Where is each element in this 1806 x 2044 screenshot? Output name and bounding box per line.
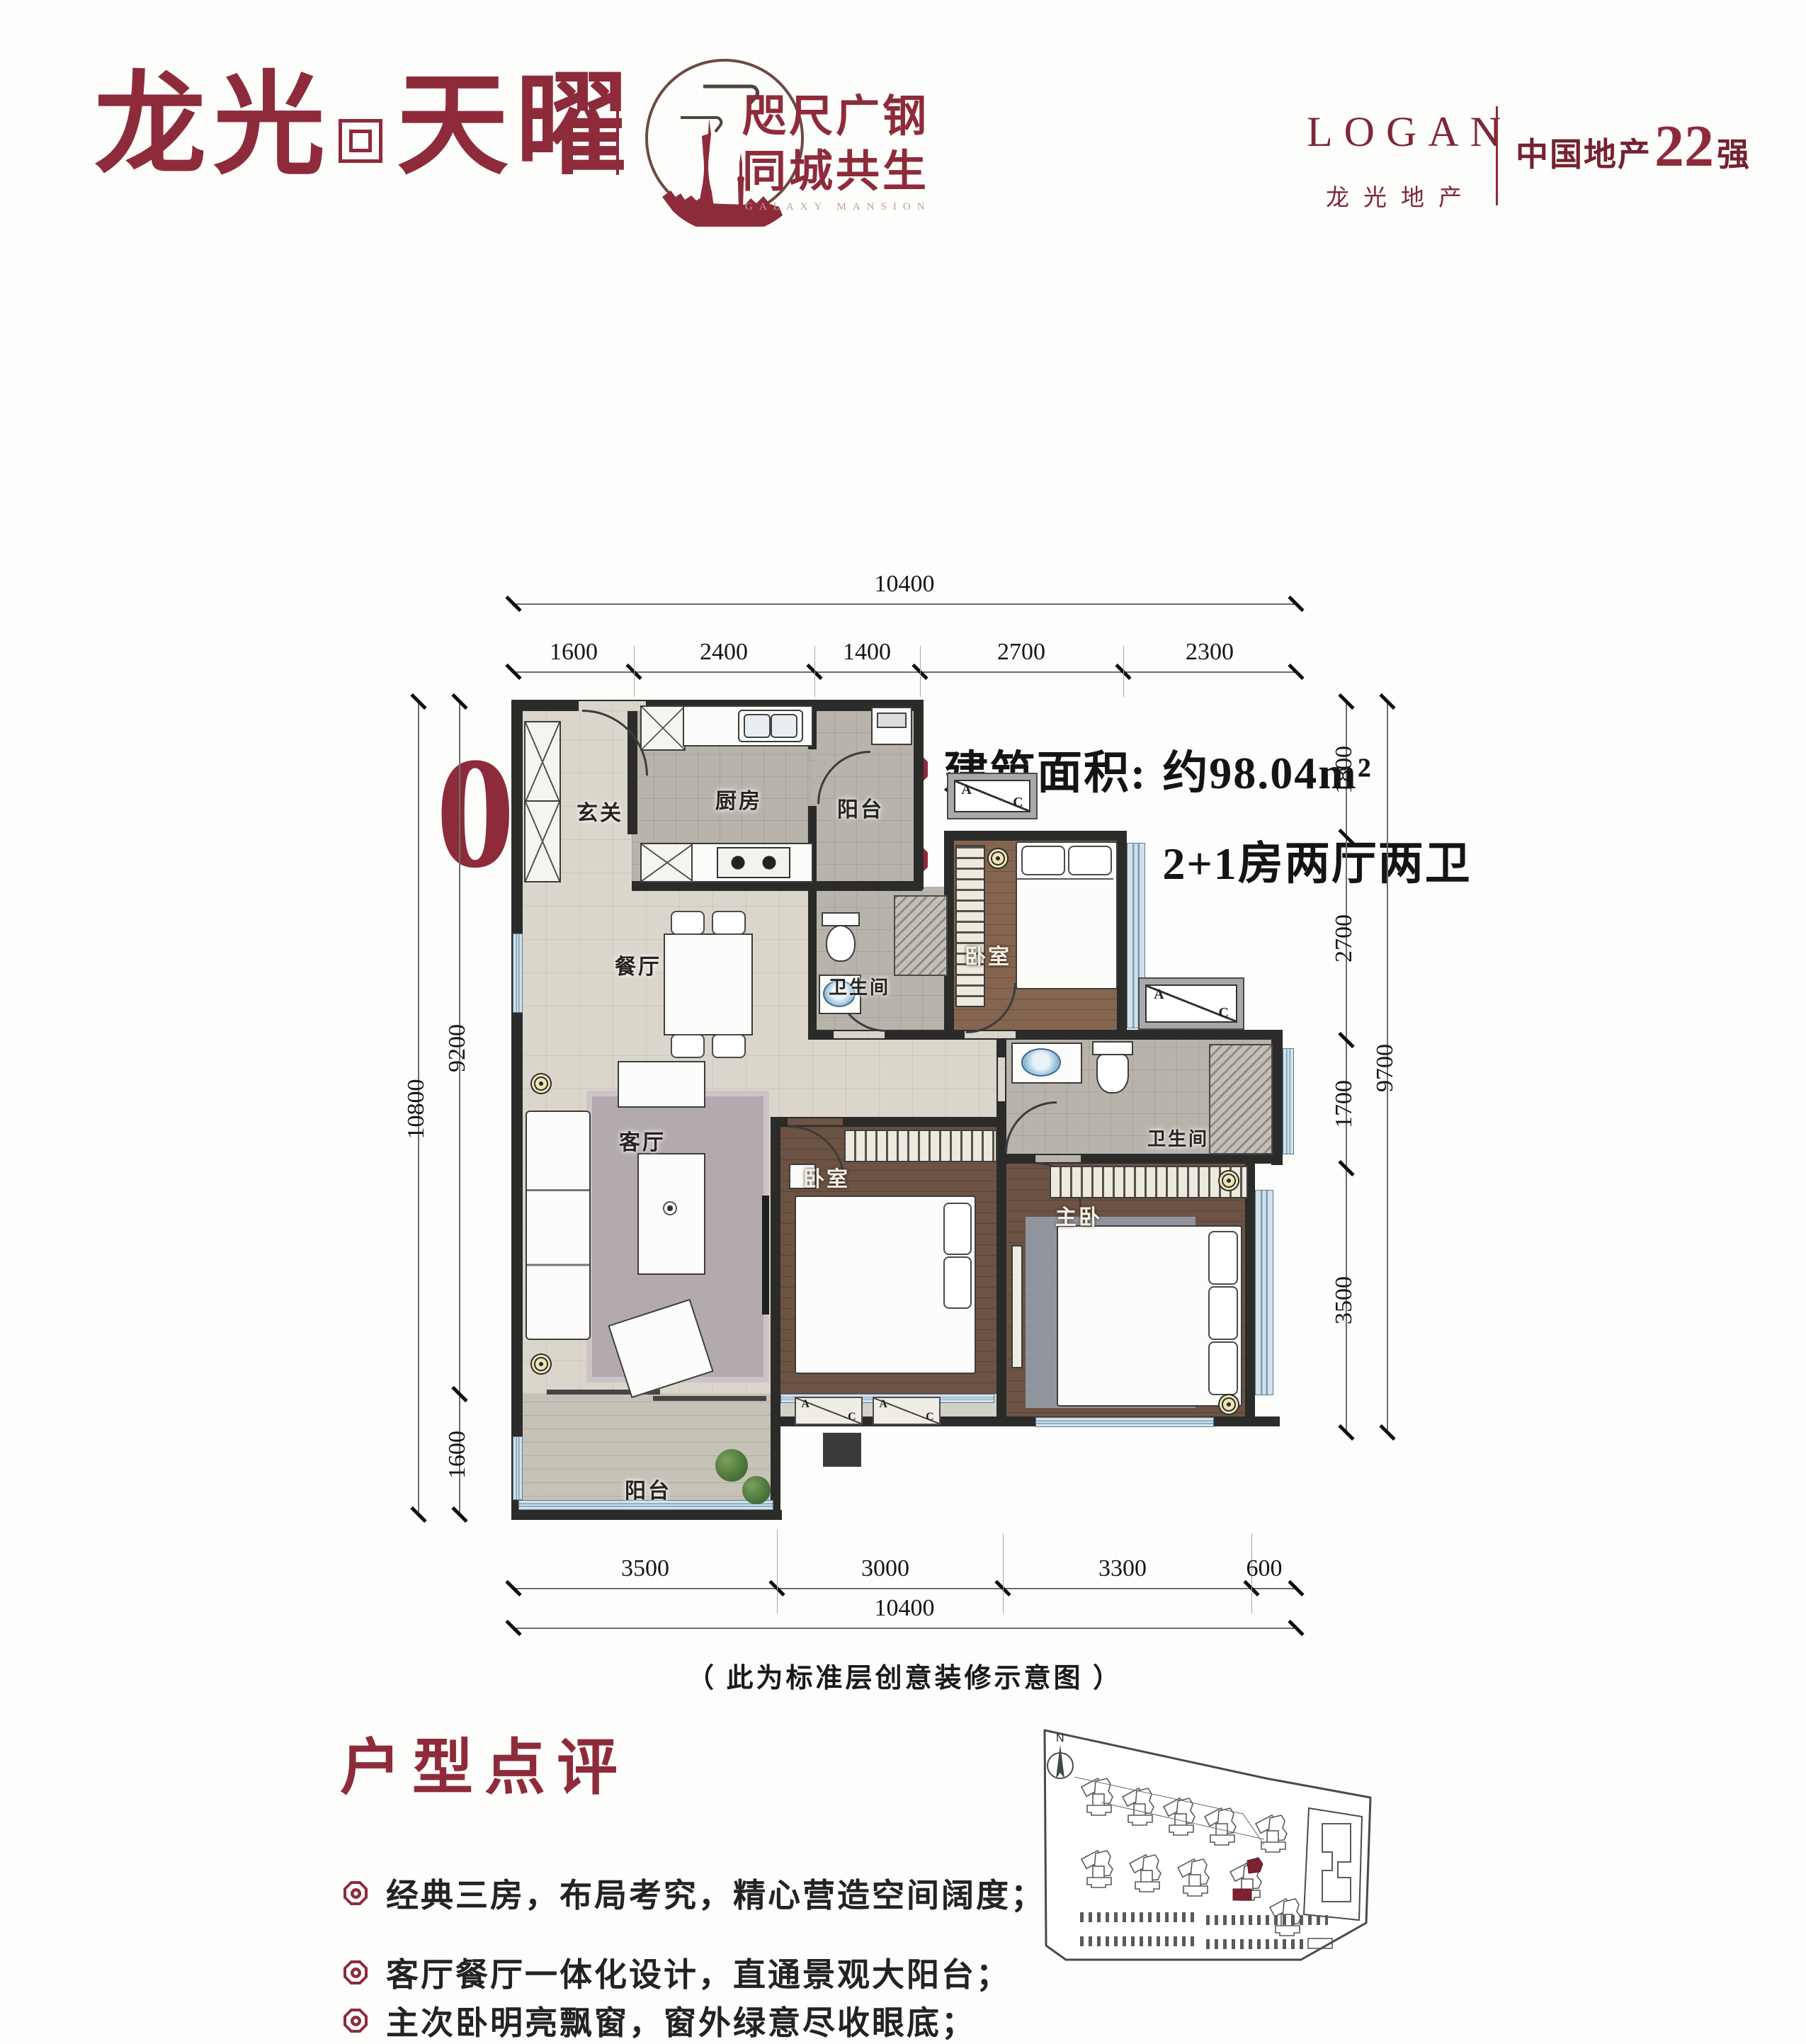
tick bbox=[1288, 664, 1304, 680]
room-label-living: 客厅 bbox=[619, 1125, 666, 1156]
header-divider-left bbox=[616, 93, 619, 175]
ext-line bbox=[634, 646, 635, 697]
ac-label-a: A bbox=[879, 1398, 887, 1411]
wall bbox=[511, 700, 523, 1520]
tick bbox=[1115, 664, 1131, 680]
water-heater-panel bbox=[877, 712, 907, 728]
dim-top-1: 2400 bbox=[681, 639, 766, 666]
pipe-shaft bbox=[823, 1433, 861, 1467]
dim-right-3: 3500 bbox=[1331, 1258, 1358, 1343]
tick bbox=[451, 693, 467, 710]
rosette-icon bbox=[343, 1960, 368, 1985]
rank-prefix: 中国地产 bbox=[1516, 129, 1652, 176]
rosette-icon bbox=[343, 1881, 368, 1905]
plant-icon bbox=[715, 1449, 748, 1482]
sliding-door bbox=[653, 1396, 766, 1401]
window-dining bbox=[513, 933, 523, 1013]
ac-platform-bedroom1: AC bbox=[947, 773, 1038, 819]
highlight-unit bbox=[1233, 1889, 1251, 1900]
ac-label-c: C bbox=[848, 1411, 856, 1424]
stamp-line2: 同城共生 bbox=[742, 146, 929, 200]
shower bbox=[894, 895, 948, 976]
toilet bbox=[1092, 1041, 1133, 1055]
plan-note: （ 此为标准层创意装修示意图 ） bbox=[513, 1656, 1296, 1695]
dining-chair bbox=[712, 911, 746, 935]
wall bbox=[511, 1510, 782, 1520]
wardrobe bbox=[955, 845, 985, 1007]
dim-bottom-1: 3000 bbox=[843, 1555, 928, 1582]
tv-icon bbox=[762, 1196, 769, 1315]
table-decor bbox=[657, 1196, 683, 1221]
cloud-icon bbox=[681, 118, 721, 132]
tick bbox=[625, 664, 642, 680]
toilet-bowl bbox=[826, 925, 856, 962]
pillow bbox=[1208, 1341, 1238, 1395]
tick bbox=[410, 693, 426, 710]
dining-chair bbox=[671, 1034, 705, 1058]
sink-basin bbox=[771, 714, 797, 738]
review-bullet: 客厅餐厅一体化设计，直通景观大阳台； bbox=[343, 1949, 1011, 1996]
dim-top-total: 10400 bbox=[862, 571, 947, 598]
sofa bbox=[526, 1111, 591, 1340]
dim-bottom-total: 10400 bbox=[862, 1595, 947, 1622]
fridge bbox=[640, 705, 686, 751]
door-gap bbox=[810, 751, 817, 805]
site-plan: N bbox=[1030, 1710, 1392, 1994]
dim-top-3: 2700 bbox=[979, 639, 1064, 666]
window-balcony-side bbox=[513, 1436, 523, 1500]
ac-label-a: A bbox=[961, 782, 971, 798]
tick bbox=[1243, 1580, 1259, 1596]
entry-cabinet bbox=[524, 721, 561, 803]
pillow bbox=[943, 1203, 972, 1255]
ac-platform-master: AC bbox=[1138, 977, 1244, 1030]
room-label-master: 主卧 bbox=[1055, 1200, 1102, 1231]
room-label-balcony-top: 阳台 bbox=[837, 792, 884, 823]
tick bbox=[1338, 1160, 1354, 1176]
tower-icon bbox=[698, 118, 715, 212]
bath-sink bbox=[1021, 1048, 1061, 1077]
ext-line bbox=[1123, 646, 1124, 697]
tv-console bbox=[1011, 1245, 1023, 1368]
highlight-unit bbox=[1247, 1858, 1263, 1873]
wall bbox=[996, 1121, 1006, 1424]
window-master-south bbox=[1035, 1417, 1214, 1427]
wall bbox=[1271, 1034, 1283, 1165]
wall bbox=[914, 700, 924, 890]
tick bbox=[505, 596, 521, 612]
tick bbox=[1288, 1620, 1304, 1636]
review-bullet-text: 经典三房，布局考究，精心营造空间阔度； bbox=[386, 1870, 1045, 1917]
ceiling-spot-icon bbox=[1217, 1169, 1241, 1193]
tick bbox=[768, 1580, 785, 1596]
tick bbox=[505, 1620, 521, 1636]
ac-box-sill: AC bbox=[795, 1397, 863, 1425]
dim-line bbox=[513, 603, 1296, 605]
dim-top-0: 1600 bbox=[531, 639, 616, 666]
wall bbox=[632, 881, 922, 891]
pillow bbox=[1068, 846, 1112, 875]
stamp-subtitle: GALAXY MANSION bbox=[745, 201, 931, 213]
wall bbox=[944, 831, 1127, 841]
ac-label-c: C bbox=[926, 1411, 934, 1424]
tick bbox=[1338, 1032, 1354, 1048]
brand-second: 天曜 bbox=[397, 71, 635, 183]
dining-chair bbox=[671, 911, 705, 935]
dim-line bbox=[513, 671, 1296, 673]
dim-top-4: 2300 bbox=[1167, 639, 1252, 666]
stove-icon bbox=[717, 847, 790, 878]
review-bullet: 经典三房，布局考究，精心营造空间阔度； bbox=[343, 1870, 1045, 1917]
stamp-line1: 咫尺广钢 bbox=[742, 91, 929, 144]
dim-top-2: 1400 bbox=[824, 639, 909, 666]
shower bbox=[1209, 1044, 1273, 1154]
dim-left-total: 10800 bbox=[403, 1067, 430, 1152]
dim-bottom-2: 3300 bbox=[1080, 1555, 1165, 1582]
review-bullet-text: 主次卧明亮飘窗，窗外绿意尽收眼底； bbox=[386, 1997, 976, 2044]
ext-line bbox=[920, 646, 921, 697]
toilet-bowl bbox=[1096, 1054, 1129, 1094]
sink-basin bbox=[744, 714, 771, 738]
plant-icon bbox=[742, 1476, 771, 1504]
room-label-bath1: 卫生间 bbox=[829, 973, 890, 999]
dim-line bbox=[1346, 701, 1347, 1432]
tick bbox=[505, 1580, 521, 1596]
header-divider-right bbox=[1496, 106, 1498, 205]
room-label-kitchen: 厨房 bbox=[715, 783, 762, 814]
dim-right-1: 2700 bbox=[1331, 896, 1358, 981]
wardrobe bbox=[844, 1130, 997, 1162]
dim-line bbox=[1387, 701, 1388, 1432]
ac-label-c: C bbox=[1013, 795, 1023, 811]
bay-window-master bbox=[1255, 1190, 1273, 1395]
logan-subtitle: 龙光地产 bbox=[1326, 178, 1476, 212]
room-label-bedroom2: 卧室 bbox=[803, 1162, 850, 1193]
brand-seal-icon bbox=[339, 119, 382, 163]
dim-bottom-3: 600 bbox=[1222, 1555, 1307, 1582]
entry-cabinet bbox=[524, 800, 561, 882]
tick bbox=[1338, 1424, 1354, 1441]
dim-left-0: 9200 bbox=[444, 1006, 471, 1091]
brand-first: 龙光 bbox=[94, 71, 332, 183]
door-gap bbox=[1035, 1155, 1081, 1162]
header: 龙光 天曜 咫尺广钢 同城共生 GALAXY MANSION LOGAN 龙光地… bbox=[0, 0, 1806, 234]
kitchen-cabinet bbox=[640, 843, 694, 882]
room-label-entry: 玄关 bbox=[577, 795, 623, 827]
dim-line bbox=[513, 1588, 1296, 1589]
door-gap bbox=[834, 1031, 885, 1038]
door-gap bbox=[998, 1057, 1005, 1101]
floor-plan: AC AC AC AC bbox=[511, 700, 1308, 1528]
toilet bbox=[822, 912, 860, 926]
tick bbox=[806, 664, 822, 680]
poster-page: { "header": { "brand_first": "龙光", "bran… bbox=[0, 0, 1806, 2039]
dining-chair bbox=[712, 1034, 746, 1058]
logan-logo: LOGAN bbox=[1307, 108, 1512, 157]
rosette-icon bbox=[343, 2009, 368, 2033]
tick bbox=[451, 1386, 467, 1402]
door-gap bbox=[788, 1118, 843, 1125]
side-table bbox=[618, 1061, 705, 1108]
room-label-dining: 餐厅 bbox=[615, 949, 661, 980]
review-bullet-text: 客厅餐厅一体化设计，直通景观大阳台； bbox=[386, 1949, 1011, 1996]
tick bbox=[994, 1580, 1011, 1596]
dim-right-2: 1700 bbox=[1331, 1062, 1358, 1147]
dim-line bbox=[418, 701, 419, 1514]
tick bbox=[1379, 1424, 1395, 1441]
dim-line bbox=[513, 1628, 1296, 1629]
duvet-line bbox=[1017, 878, 1113, 880]
tick bbox=[451, 1506, 467, 1523]
tick bbox=[505, 664, 521, 680]
wall bbox=[771, 1117, 780, 1400]
window-bath2 bbox=[1283, 1048, 1294, 1154]
tick bbox=[410, 1506, 426, 1523]
room-label-bath2: 卫生间 bbox=[1147, 1125, 1209, 1151]
ac-box-sill: AC bbox=[873, 1397, 941, 1425]
wall bbox=[1117, 831, 1127, 1040]
rank-suffix: 强 bbox=[1717, 129, 1751, 176]
rank-number: 22 bbox=[1654, 112, 1714, 181]
pillow bbox=[1021, 846, 1065, 875]
ac-label-a: A bbox=[801, 1398, 810, 1411]
dim-right-total: 9700 bbox=[1372, 1026, 1399, 1111]
unit-title-block: 02/05 户型 建筑面积: 约98.04m² 户型格局: 2+1房两厅两卫 bbox=[0, 354, 1806, 567]
dim-bottom-0: 3500 bbox=[603, 1555, 688, 1582]
pillow bbox=[1208, 1231, 1238, 1285]
ext-line bbox=[1251, 1533, 1252, 1613]
tick bbox=[1338, 693, 1354, 710]
tick bbox=[1288, 1580, 1304, 1596]
ac-label-a: A bbox=[1154, 987, 1164, 1003]
ceiling-spot-icon bbox=[1217, 1392, 1241, 1416]
rank-badge: 中国地产 22 强 bbox=[1516, 112, 1751, 181]
tick bbox=[911, 664, 928, 680]
ceiling-spot-icon bbox=[986, 846, 1010, 870]
ext-line bbox=[1003, 1533, 1004, 1613]
tick bbox=[1379, 693, 1395, 710]
tick bbox=[1288, 596, 1304, 612]
ac-label-c: C bbox=[1218, 1005, 1228, 1021]
pillow bbox=[1208, 1286, 1238, 1340]
room-label-balcony: 阳台 bbox=[625, 1473, 671, 1504]
wall bbox=[808, 890, 817, 1040]
dining-table bbox=[664, 933, 753, 1035]
pillow bbox=[943, 1256, 972, 1309]
room-label-bedroom1: 卧室 bbox=[965, 939, 1011, 970]
dim-left-1: 1600 bbox=[444, 1412, 471, 1497]
ext-line bbox=[777, 1530, 778, 1613]
review-bullet: 主次卧明亮飘窗，窗外绿意尽收眼底； bbox=[343, 1997, 976, 2044]
ceiling-spot-icon bbox=[528, 1071, 554, 1096]
compass-label: N bbox=[1056, 1732, 1064, 1744]
ext-line bbox=[814, 646, 815, 697]
ceiling-spot-icon bbox=[528, 1351, 554, 1377]
